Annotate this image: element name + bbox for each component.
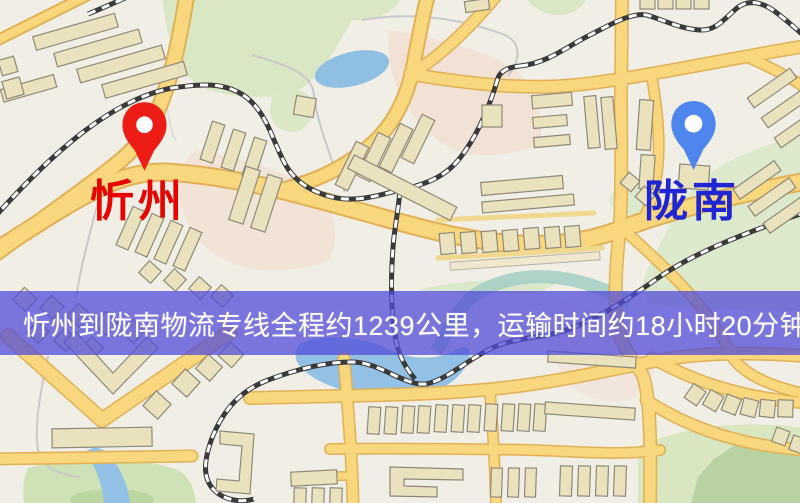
destination-label: 陇南 (644, 180, 740, 224)
origin-pin-icon (121, 101, 168, 172)
route-banner: 忻州到陇南物流专线全程约1239公里，运输时间约18小时20分钟. (0, 291, 800, 355)
route-banner-text: 忻州到陇南物流专线全程约1239公里，运输时间约18小时20分钟. (0, 304, 800, 343)
map: 忻州 陇南 忻州到陇南物流专线全程约1239公里，运输时间约18小时20分钟. (0, 0, 800, 503)
origin-label: 忻州 (90, 180, 186, 224)
destination-pin-icon (669, 100, 718, 171)
origin-pin (121, 101, 168, 172)
destination-pin (669, 100, 718, 171)
map-graphic (0, 0, 800, 503)
